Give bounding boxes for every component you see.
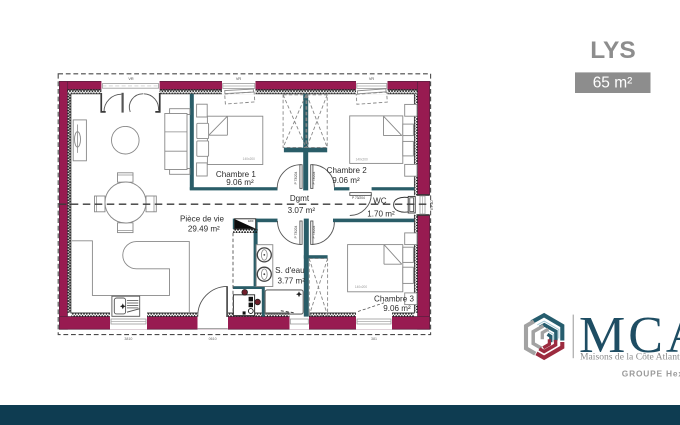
svg-text:140x200: 140x200 [355,285,367,289]
svg-text:P 73/204: P 73/204 [312,225,316,238]
svg-text:P 73/204: P 73/204 [312,171,316,184]
svg-text:EP1D: EP1D [430,200,434,210]
svg-text:S. d'eau: S. d'eau [275,266,304,275]
svg-text:Chambre 3: Chambre 3 [374,294,415,303]
svg-text:P 73/204: P 73/204 [294,171,298,184]
svg-text:29.49 m²: 29.49 m² [188,225,220,234]
svg-text:EDF: EDF [248,219,254,223]
svg-text:Dgmt: Dgmt [290,194,310,203]
svg-text:0610: 0610 [209,337,217,341]
svg-text:9.06 m²: 9.06 m² [332,176,360,185]
svg-text:VR: VR [236,77,242,81]
svg-text:140x200: 140x200 [243,157,255,161]
svg-text:P 73/204: P 73/204 [352,196,365,200]
svg-text:3810: 3810 [124,337,132,341]
svg-text:9.06 m²: 9.06 m² [226,178,254,187]
svg-text:3.77 m²: 3.77 m² [277,276,305,285]
svg-text:381: 381 [371,337,377,341]
svg-text:WC: WC [373,196,387,205]
svg-text:LYS: LYS [590,37,635,64]
svg-text:GROUPE Hexaöm: GROUPE Hexaöm [622,368,680,378]
svg-text:VR: VR [128,77,134,81]
svg-text:3.07 m²: 3.07 m² [288,206,316,215]
svg-text:140x200: 140x200 [356,157,368,161]
svg-text:1.70 m²: 1.70 m² [367,210,395,219]
svg-text:Chambre 2: Chambre 2 [327,166,368,175]
svg-text:9.06 m²: 9.06 m² [383,304,411,313]
svg-text:Maisons de la Côte Atlantique: Maisons de la Côte Atlantique [580,352,680,363]
svg-text:VR: VR [369,77,375,81]
svg-text:P 73/204: P 73/204 [294,225,298,238]
svg-text:65 m²: 65 m² [593,75,633,92]
svg-text:Pièce de vie: Pièce de vie [180,215,225,224]
